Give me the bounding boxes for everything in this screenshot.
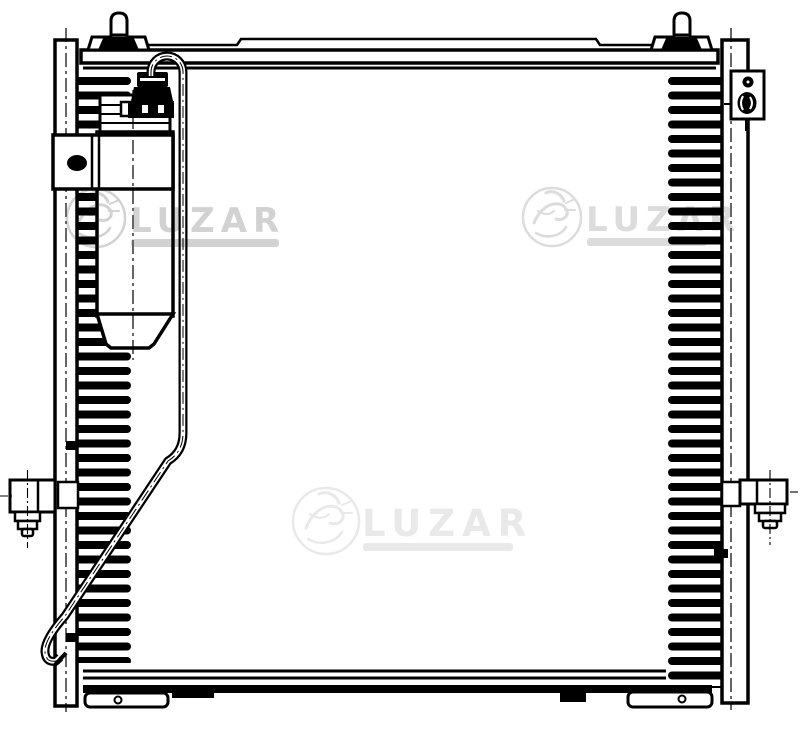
- watermark-text: LUZAR: [362, 502, 533, 545]
- drawing-svg: LUZAR LUZAR LUZAR: [0, 0, 800, 736]
- watermark-text: LUZAR: [130, 201, 285, 241]
- bottom-foot-right: [628, 692, 712, 707]
- bottom-foot-left: [85, 693, 168, 707]
- drier-clamp: [53, 135, 173, 189]
- watermark-tagline-bar: [363, 543, 513, 551]
- right-side-rail: [722, 28, 748, 710]
- watermark-text: LUZAR: [586, 200, 741, 240]
- watermark-tagline-bar: [587, 238, 707, 246]
- condenser-technical-drawing: LUZAR LUZAR LUZAR: [0, 0, 800, 736]
- right-fin-stack: [665, 74, 722, 688]
- watermark-tagline-bar: [131, 239, 279, 247]
